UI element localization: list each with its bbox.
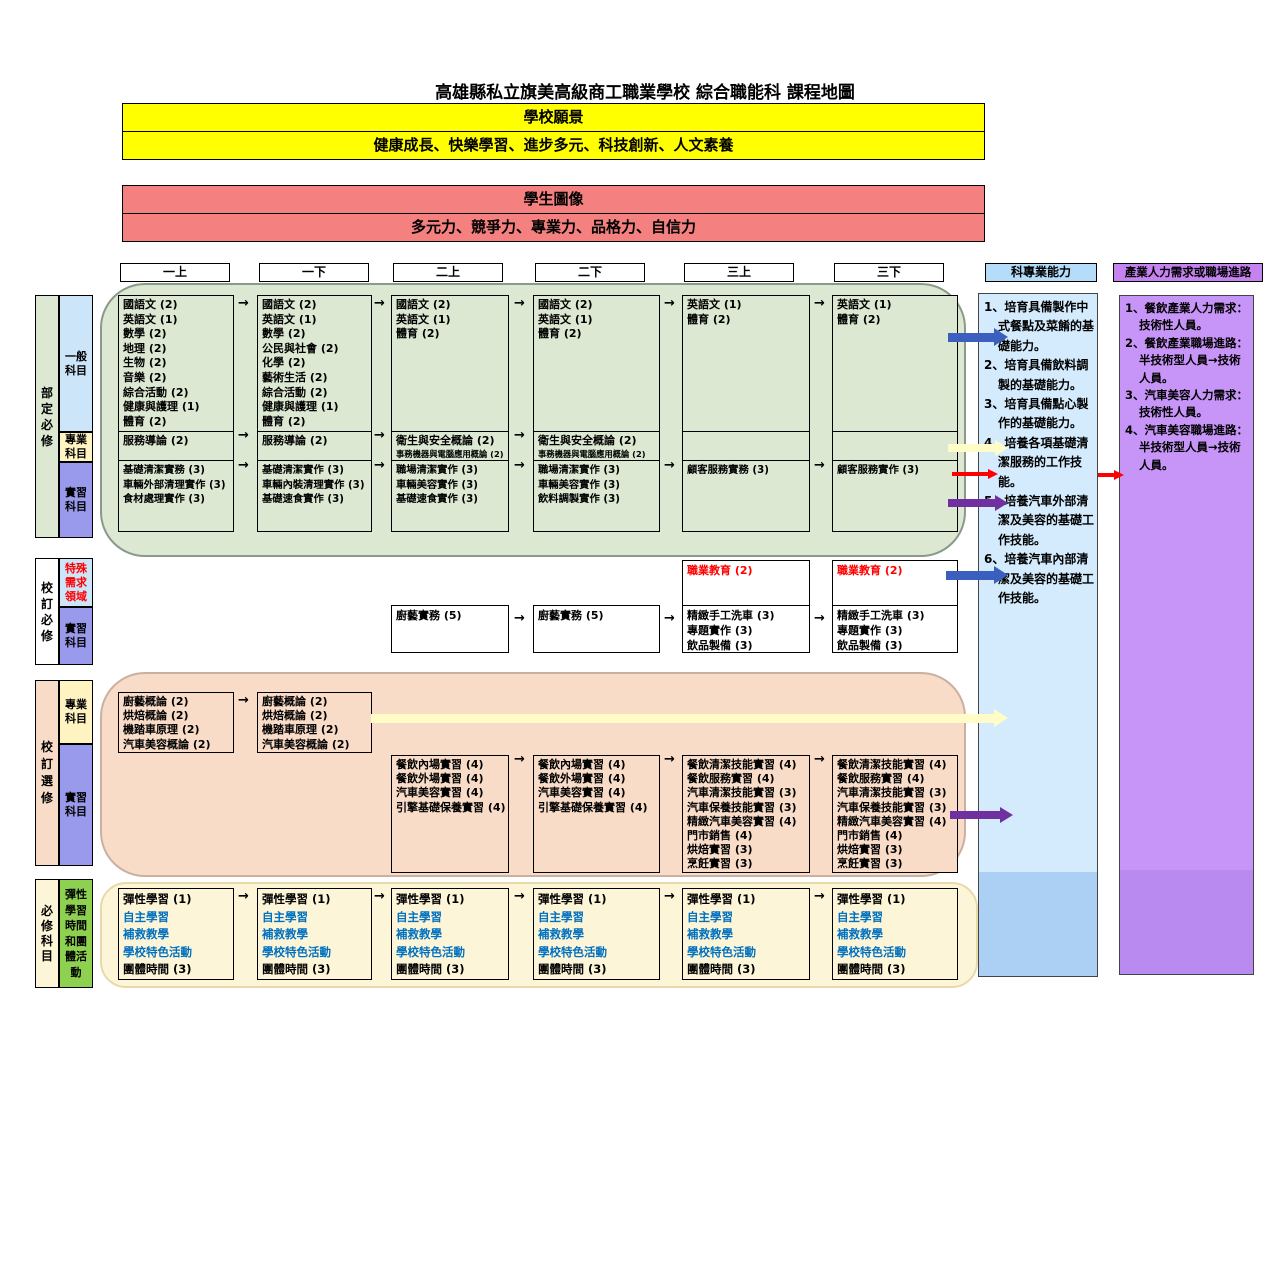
industry-item: 3、汽車美容人力需求：技術性人員。 — [1125, 387, 1251, 422]
course-item: 英語文 (1) — [538, 313, 655, 328]
course-item: 補救教學 — [262, 926, 367, 944]
course-item: 團體時間 (3) — [123, 961, 229, 979]
course-section: 彈性學習 (1)自主學習補救教學學校特色活動團體時間 (3) — [119, 889, 233, 979]
course-item: 顧客服務實務 (3) — [687, 463, 805, 478]
course-section: 國語文 (2)英語文 (1)體育 (2) — [534, 296, 659, 431]
course-section: 餐飲清潔技能實習 (4)餐飲服務實習 (4)汽車清潔技能實習 (3)汽車保養技能… — [683, 756, 809, 872]
course-item: 機踏車原理 (2) — [123, 723, 229, 737]
course-item: 英語文 (1) — [396, 313, 504, 328]
course-item: 廚藝概論 (2) — [262, 695, 367, 709]
course-section: 廚藝實務 (5) — [392, 606, 508, 652]
course-section: 職場清潔實作 (3)車輛美容實作 (3)飲料調製實作 (3) — [534, 460, 659, 531]
course-item: 車輛美容實作 (3) — [396, 478, 504, 493]
course-item: 衛生與安全概論 (2) — [396, 434, 504, 448]
course-section: 顧客服務實務 (3) — [683, 460, 809, 531]
course-item: 團體時間 (3) — [262, 961, 367, 979]
course-item: 機踏車原理 (2) — [262, 723, 367, 737]
arrow-head — [994, 709, 1008, 727]
course-item: 國語文 (2) — [396, 298, 504, 313]
sublabel-text: 彈性學習時間和團體活動 — [63, 887, 89, 980]
course-item: 飲品製備 (3) — [837, 638, 953, 652]
flexible-learning-box-sem6: 彈性學習 (1)自主學習補救教學學校特色活動團體時間 (3) — [832, 888, 958, 980]
arrow-head — [988, 469, 998, 479]
course-item: 事務機器與電腦應用概論 (2) — [396, 448, 504, 460]
industry-item: 1、餐飲產業人力需求：技術性人員。 — [1125, 300, 1251, 335]
flow-arrow: → — [374, 890, 385, 903]
course-item: 補救教學 — [123, 926, 229, 944]
course-item: 衛生與安全概論 (2) — [538, 434, 655, 448]
course-section: 職業教育 (2) — [683, 561, 809, 605]
abilities-panel-lower-shade — [979, 872, 1097, 976]
flow-arrow: → — [374, 429, 385, 442]
course-item: 音樂 (2) — [123, 371, 229, 386]
course-section: 衛生與安全概論 (2)事務機器與電腦應用概論 (2) — [392, 431, 508, 460]
course-item: 化學 (2) — [262, 356, 367, 371]
semester-header-5: 三上 — [684, 263, 794, 282]
page-title: 高雄縣私立旗美高級商工職業學校 綜合職能科 課程地圖 — [0, 78, 1280, 103]
course-item: 門市銷售 (4) — [837, 829, 953, 843]
course-item: 餐飲內場實習 (4) — [396, 758, 504, 772]
course-item: 車輛內裝清理實作 (3) — [262, 478, 367, 493]
flow-arrow: → — [238, 459, 249, 472]
industry-item: 4、汽車美容職場進路：半技術型人員→技術人員。 — [1125, 422, 1251, 474]
abilities-panel-header: 科專業能力 — [985, 263, 1097, 282]
course-item: 基礎清潔實務 (3) — [123, 463, 229, 478]
flow-arrow: → — [514, 753, 525, 766]
course-item: 健康與護理 (1) — [123, 400, 229, 415]
arrow-head — [994, 566, 1008, 584]
course-item: 汽車清潔技能實習 (3) — [837, 786, 953, 800]
sublabel-elective-practicum: 實習科目 — [59, 744, 93, 866]
sublabel-text: 專業科目 — [63, 698, 89, 726]
course-item: 烹飪實習 (3) — [837, 857, 953, 871]
arrow-shaft — [948, 444, 995, 452]
course-item: 飲料調製實作 (3) — [538, 492, 655, 507]
section-label-school-required: 校訂必修 — [35, 558, 59, 665]
ministry-course-box-sem4: 國語文 (2)英語文 (1)體育 (2)衛生與安全概論 (2)事務機器與電腦應用… — [533, 295, 660, 532]
flexible-learning-box-sem4: 彈性學習 (1)自主學習補救教學學校特色活動團體時間 (3) — [533, 888, 660, 980]
course-item: 學校特色活動 — [123, 944, 229, 962]
elective-practicum-box-sem4: 餐飲內場實習 (4)餐飲外場實習 (4)汽車美容實習 (4)引擎基礎保養實習 (… — [533, 755, 660, 873]
course-section: 餐飲清潔技能實習 (4)餐飲服務實習 (4)汽車清潔技能實習 (3)汽車保養技能… — [833, 756, 957, 872]
flow-arrow: → — [514, 297, 525, 310]
course-section — [683, 431, 809, 460]
student-image-banner: 學生圖像 多元力、競爭力、專業力、品格力、自信力 — [122, 185, 985, 242]
course-item: 烘焙實習 (3) — [687, 843, 805, 857]
sublabel-elective-professional: 專業科目 — [59, 680, 93, 744]
course-item: 精緻汽車美容實習 (4) — [837, 815, 953, 829]
school-required-box-sem3: 廚藝實務 (5) — [391, 605, 509, 653]
arrow-head — [994, 328, 1008, 346]
course-item: 食材處理實作 (3) — [123, 492, 229, 507]
course-item: 精緻汽車美容實習 (4) — [687, 815, 805, 829]
course-section: 衛生與安全概論 (2)事務機器與電腦應用概論 (2) — [534, 431, 659, 460]
course-item: 英語文 (1) — [687, 298, 805, 313]
course-item: 團體時間 (3) — [687, 961, 805, 979]
course-item: 車輛外部清理實作 (3) — [123, 478, 229, 493]
course-item: 自主學習 — [837, 909, 953, 927]
sublabel-text: 實習科目 — [63, 622, 89, 650]
course-item: 廚藝概論 (2) — [123, 695, 229, 709]
section-label-text: 部定必修 — [41, 385, 54, 449]
section-label-text: 校訂必修 — [41, 580, 54, 644]
school-required-box-sem4: 廚藝實務 (5) — [533, 605, 660, 653]
elective-professional-box-sem1: 廚藝概論 (2)烘焙概論 (2)機踏車原理 (2)汽車美容概論 (2) — [118, 692, 234, 753]
course-item: 學校特色活動 — [538, 944, 655, 962]
flow-arrow: → — [664, 753, 675, 766]
course-item: 廚藝實務 (5) — [538, 608, 655, 623]
course-item: 基礎清潔實作 (3) — [262, 463, 367, 478]
flow-arrow: → — [664, 890, 675, 903]
course-item: 汽車保養技能實習 (3) — [837, 801, 953, 815]
flow-arrow: → — [814, 890, 825, 903]
course-item: 基礎速食實作 (3) — [396, 492, 504, 507]
course-item: 數學 (2) — [262, 327, 367, 342]
course-section: 彈性學習 (1)自主學習補救教學學校特色活動團體時間 (3) — [258, 889, 371, 979]
course-item: 團體時間 (3) — [396, 961, 504, 979]
course-section: 國語文 (2)英語文 (1)數學 (2)地理 (2)生物 (2)音樂 (2)綜合… — [119, 296, 233, 431]
arrow-shaft — [948, 333, 994, 342]
flow-arrow: → — [238, 694, 249, 707]
arrow-head — [995, 440, 1008, 456]
course-item: 數學 (2) — [123, 327, 229, 342]
ministry-course-box-sem1: 國語文 (2)英語文 (1)數學 (2)地理 (2)生物 (2)音樂 (2)綜合… — [118, 295, 234, 532]
sublabel-general-subjects: 一般科目 — [59, 295, 93, 432]
course-section: 餐飲內場實習 (4)餐飲外場實習 (4)汽車美容實習 (4)引擎基礎保養實習 (… — [392, 756, 508, 872]
course-item: 事務機器與電腦應用概論 (2) — [538, 448, 655, 460]
course-item: 服務導論 (2) — [262, 434, 367, 448]
transfer-arrow-yellow-long — [371, 709, 1008, 727]
industry-panel: 1、餐飲產業人力需求：技術性人員。2、餐飲產業職場進路：半技術型人員→技術人員。… — [1119, 295, 1254, 975]
flow-arrow: → — [814, 297, 825, 310]
flow-arrow: → — [514, 890, 525, 903]
course-item: 烘焙實習 (3) — [837, 843, 953, 857]
course-item: 英語文 (1) — [262, 313, 367, 328]
semester-header-4: 二下 — [535, 263, 645, 282]
arrow-head — [1114, 470, 1124, 480]
course-item: 職業教育 (2) — [687, 563, 805, 578]
course-item: 學校特色活動 — [837, 944, 953, 962]
course-item: 團體時間 (3) — [538, 961, 655, 979]
elective-practicum-box-sem3: 餐飲內場實習 (4)餐飲外場實習 (4)汽車美容實習 (4)引擎基礎保養實習 (… — [391, 755, 509, 873]
course-item: 職場清潔實作 (3) — [396, 463, 504, 478]
transfer-arrow-blue-top — [948, 328, 1008, 347]
course-item: 藝術生活 (2) — [262, 371, 367, 386]
student-image-header: 學生圖像 — [123, 186, 984, 214]
semester-header-6: 三下 — [834, 263, 944, 282]
course-item: 餐飲清潔技能實習 (4) — [837, 758, 953, 772]
course-item: 國語文 (2) — [538, 298, 655, 313]
arrow-shaft — [371, 714, 994, 723]
course-section: 職業教育 (2) — [833, 561, 957, 605]
course-item: 餐飲外場實習 (4) — [538, 772, 655, 786]
course-item: 烹飪實習 (3) — [687, 857, 805, 871]
flow-arrow: → — [514, 612, 525, 625]
course-section: 職場清潔實作 (3)車輛美容實作 (3)基礎速食實作 (3) — [392, 460, 508, 531]
semester-header-3: 二上 — [393, 263, 503, 282]
course-item: 英語文 (1) — [123, 313, 229, 328]
section-label-flexible: 必修科目 — [35, 879, 59, 988]
course-item: 服務導論 (2) — [123, 434, 229, 448]
flow-arrow: → — [514, 459, 525, 472]
course-item: 專題實作 (3) — [687, 623, 805, 638]
course-item: 餐飲服務實習 (4) — [687, 772, 805, 786]
course-item: 補救教學 — [396, 926, 504, 944]
section-label-ministry-required: 部定必修 — [35, 295, 59, 538]
course-item: 餐飲清潔技能實習 (4) — [687, 758, 805, 772]
flow-arrow: → — [664, 612, 675, 625]
course-item: 汽車美容實習 (4) — [396, 786, 504, 800]
section-label-text: 必修科目 — [41, 904, 54, 964]
course-item: 廚藝實務 (5) — [396, 608, 504, 623]
course-section: 彈性學習 (1)自主學習補救教學學校特色活動團體時間 (3) — [392, 889, 508, 979]
course-section: 基礎清潔實務 (3)車輛外部清理實作 (3)食材處理實作 (3) — [119, 460, 233, 531]
course-item: 英語文 (1) — [837, 298, 953, 313]
course-section: 國語文 (2)英語文 (1)數學 (2)公民與社會 (2)化學 (2)藝術生活 … — [258, 296, 371, 431]
flow-arrow: → — [374, 459, 385, 472]
course-section: 英語文 (1)體育 (2) — [833, 296, 957, 431]
course-item: 餐飲內場實習 (4) — [538, 758, 655, 772]
course-section: 彈性學習 (1)自主學習補救教學學校特色活動團體時間 (3) — [833, 889, 957, 979]
school-vision-content: 健康成長、快樂學習、進步多元、科技創新、人文素養 — [123, 132, 984, 159]
semester-header-2: 一下 — [259, 263, 369, 282]
transfer-arrow-yellow-top — [948, 440, 1008, 457]
course-section: 廚藝概論 (2)烘焙概論 (2)機踏車原理 (2)汽車美容概論 (2) — [119, 693, 233, 752]
sublabel-required-practicum: 實習科目 — [59, 607, 93, 665]
course-section: 服務導論 (2) — [119, 431, 233, 460]
transfer-arrow-red-top — [952, 469, 998, 480]
flow-arrow: → — [238, 429, 249, 442]
sublabel-text: 實習科目 — [63, 791, 89, 819]
flow-arrow: → — [374, 297, 385, 310]
course-section: 彈性學習 (1)自主學習補救教學學校特色活動團體時間 (3) — [683, 889, 809, 979]
elective-practicum-box-sem6: 餐飲清潔技能實習 (4)餐飲服務實習 (4)汽車清潔技能實習 (3)汽車保養技能… — [832, 755, 958, 873]
course-item: 顧客服務實作 (3) — [837, 463, 953, 478]
semester-header-1: 一上 — [120, 263, 230, 282]
industry-list: 1、餐飲產業人力需求：技術性人員。2、餐飲產業職場進路：半技術型人員→技術人員。… — [1125, 300, 1251, 474]
industry-item: 2、餐飲產業職場進路：半技術型人員→技術人員。 — [1125, 335, 1251, 387]
arrow-head — [995, 495, 1008, 511]
course-item: 專題實作 (3) — [837, 623, 953, 638]
course-item: 汽車清潔技能實習 (3) — [687, 786, 805, 800]
course-item: 體育 (2) — [837, 313, 953, 328]
arrow-shaft — [950, 811, 1000, 819]
school-required-box-sem6: 職業教育 (2)精緻手工洗車 (3)專題實作 (3)飲品製備 (3) — [832, 560, 958, 653]
course-item: 綜合活動 (2) — [262, 386, 367, 401]
flexible-learning-box-sem3: 彈性學習 (1)自主學習補救教學學校特色活動團體時間 (3) — [391, 888, 509, 980]
sublabel-special-needs-domain: 特殊需求領域 — [59, 558, 93, 607]
student-image-content: 多元力、競爭力、專業力、品格力、自信力 — [123, 214, 984, 241]
flow-arrow: → — [814, 753, 825, 766]
school-required-box-sem5: 職業教育 (2)精緻手工洗車 (3)專題實作 (3)飲品製備 (3) — [682, 560, 810, 653]
section-label-school-elective: 校訂選修 — [35, 680, 59, 866]
flow-arrow: → — [238, 890, 249, 903]
course-item: 體育 (2) — [538, 327, 655, 342]
ability-item: 2、培育具備飲料調製的基礎能力。 — [984, 356, 1095, 395]
course-section — [833, 431, 957, 460]
course-section: 彈性學習 (1)自主學習補救教學學校特色活動團體時間 (3) — [534, 889, 659, 979]
course-item: 自主學習 — [262, 909, 367, 927]
course-item: 汽車美容概論 (2) — [262, 738, 367, 752]
course-item: 補救教學 — [687, 926, 805, 944]
sublabel-text: 專業科目 — [63, 433, 89, 461]
course-section: 廚藝概論 (2)烘焙概論 (2)機踏車原理 (2)汽車美容概論 (2) — [258, 693, 371, 752]
course-item: 國語文 (2) — [123, 298, 229, 313]
elective-professional-box-sem2: 廚藝概論 (2)烘焙概論 (2)機踏車原理 (2)汽車美容概論 (2) — [257, 692, 372, 753]
flow-arrow: → — [664, 459, 675, 472]
transfer-arrow-blue-mid — [946, 566, 1008, 585]
flexible-learning-box-sem1: 彈性學習 (1)自主學習補救教學學校特色活動團體時間 (3) — [118, 888, 234, 980]
flow-arrow: → — [814, 459, 825, 472]
course-item: 綜合活動 (2) — [123, 386, 229, 401]
school-vision-banner: 學校願景 健康成長、快樂學習、進步多元、科技創新、人文素養 — [122, 103, 985, 160]
course-item: 彈性學習 (1) — [123, 891, 229, 909]
course-item: 學校特色活動 — [396, 944, 504, 962]
abilities-panel: 1、培育具備製作中式餐點及菜餚的基礎能力。2、培育具備飲料調製的基礎能力。3、培… — [978, 293, 1098, 977]
course-item: 生物 (2) — [123, 356, 229, 371]
course-section: 廚藝實務 (5) — [534, 606, 659, 652]
flow-arrow: → — [814, 612, 825, 625]
course-item: 基礎速食實作 (3) — [262, 492, 367, 507]
course-section: 精緻手工洗車 (3)專題實作 (3)飲品製備 (3) — [833, 605, 957, 652]
ministry-course-box-sem2: 國語文 (2)英語文 (1)數學 (2)公民與社會 (2)化學 (2)藝術生活 … — [257, 295, 372, 532]
sublabel-text: 一般科目 — [63, 350, 89, 378]
course-item: 職業教育 (2) — [837, 563, 953, 578]
ministry-course-box-sem6: 英語文 (1)體育 (2)顧客服務實作 (3) — [832, 295, 958, 532]
course-item: 自主學習 — [396, 909, 504, 927]
course-item: 補救教學 — [837, 926, 953, 944]
arrow-shaft — [952, 472, 988, 476]
course-item: 自主學習 — [538, 909, 655, 927]
elective-practicum-box-sem5: 餐飲清潔技能實習 (4)餐飲服務實習 (4)汽車清潔技能實習 (3)汽車保養技能… — [682, 755, 810, 873]
curriculum-map-canvas: 高雄縣私立旗美高級商工職業學校 綜合職能科 課程地圖 學校願景 健康成長、快樂學… — [0, 0, 1280, 1280]
arrow-shaft — [948, 499, 995, 507]
course-item: 汽車保養技能實習 (3) — [687, 801, 805, 815]
sublabel-professional-subjects: 專業科目 — [59, 432, 93, 462]
course-section: 基礎清潔實作 (3)車輛內裝清理實作 (3)基礎速食實作 (3) — [258, 460, 371, 531]
course-item: 門市銷售 (4) — [687, 829, 805, 843]
course-item: 學校特色活動 — [262, 944, 367, 962]
course-section: 國語文 (2)英語文 (1)體育 (2) — [392, 296, 508, 431]
flexible-learning-box-sem2: 彈性學習 (1)自主學習補救教學學校特色活動團體時間 (3) — [257, 888, 372, 980]
industry-panel-header: 產業人力需求或職場進路 — [1113, 263, 1263, 282]
course-item: 彈性學習 (1) — [538, 891, 655, 909]
course-item: 彈性學習 (1) — [396, 891, 504, 909]
section-label-text: 校訂選修 — [41, 739, 54, 807]
course-item: 汽車美容實習 (4) — [538, 786, 655, 800]
sublabel-text: 實習科目 — [63, 486, 89, 514]
course-item: 餐飲服務實習 (4) — [837, 772, 953, 786]
course-item: 補救教學 — [538, 926, 655, 944]
course-item: 精緻手工洗車 (3) — [837, 608, 953, 623]
course-section: 精緻手工洗車 (3)專題實作 (3)飲品製備 (3) — [683, 605, 809, 652]
course-item: 車輛美容實作 (3) — [538, 478, 655, 493]
course-item: 體育 (2) — [262, 415, 367, 430]
arrow-shaft — [1098, 473, 1114, 477]
school-vision-header: 學校願景 — [123, 104, 984, 132]
transfer-arrow-purple-low — [950, 807, 1013, 824]
course-section: 服務導論 (2) — [258, 431, 371, 460]
panel-link-arrow-red — [1098, 470, 1124, 481]
course-item: 國語文 (2) — [262, 298, 367, 313]
course-item: 彈性學習 (1) — [687, 891, 805, 909]
course-item: 團體時間 (3) — [837, 961, 953, 979]
course-item: 地理 (2) — [123, 342, 229, 357]
course-item: 體育 (2) — [687, 313, 805, 328]
flexible-learning-box-sem5: 彈性學習 (1)自主學習補救教學學校特色活動團體時間 (3) — [682, 888, 810, 980]
sublabel-text: 特殊需求領域 — [63, 562, 89, 604]
course-item: 烘焙概論 (2) — [123, 709, 229, 723]
course-item: 烘焙概論 (2) — [262, 709, 367, 723]
course-item: 彈性學習 (1) — [837, 891, 953, 909]
flow-arrow: → — [238, 297, 249, 310]
course-section: 顧客服務實作 (3) — [833, 460, 957, 531]
course-item: 體育 (2) — [123, 415, 229, 430]
course-item: 體育 (2) — [396, 327, 504, 342]
transfer-arrow-purple-top — [948, 495, 1008, 512]
course-item: 彈性學習 (1) — [262, 891, 367, 909]
sublabel-practicum-subjects: 實習科目 — [59, 462, 93, 538]
ability-item: 3、培育具備點心製作的基礎能力。 — [984, 395, 1095, 434]
flow-arrow: → — [514, 429, 525, 442]
course-item: 汽車美容概論 (2) — [123, 738, 229, 752]
arrow-shaft — [946, 571, 994, 580]
arrow-head — [1000, 807, 1013, 823]
ministry-course-box-sem5: 英語文 (1)體育 (2)顧客服務實務 (3) — [682, 295, 810, 532]
course-item: 公民與社會 (2) — [262, 342, 367, 357]
course-item: 自主學習 — [687, 909, 805, 927]
course-item: 自主學習 — [123, 909, 229, 927]
course-item: 精緻手工洗車 (3) — [687, 608, 805, 623]
course-item: 引擎基礎保養實習 (4) — [396, 801, 504, 815]
sublabel-flexible-learning: 彈性學習時間和團體活動 — [59, 879, 93, 988]
flow-arrow: → — [664, 297, 675, 310]
course-section: 餐飲內場實習 (4)餐飲外場實習 (4)汽車美容實習 (4)引擎基礎保養實習 (… — [534, 756, 659, 872]
course-item: 引擎基礎保養實習 (4) — [538, 801, 655, 815]
course-section: 英語文 (1)體育 (2) — [683, 296, 809, 431]
course-item: 餐飲外場實習 (4) — [396, 772, 504, 786]
ministry-course-box-sem3: 國語文 (2)英語文 (1)體育 (2)衛生與安全概論 (2)事務機器與電腦應用… — [391, 295, 509, 532]
industry-panel-lower-shade — [1120, 870, 1253, 974]
course-item: 職場清潔實作 (3) — [538, 463, 655, 478]
course-item: 學校特色活動 — [687, 944, 805, 962]
course-item: 飲品製備 (3) — [687, 638, 805, 652]
course-item: 健康與護理 (1) — [262, 400, 367, 415]
